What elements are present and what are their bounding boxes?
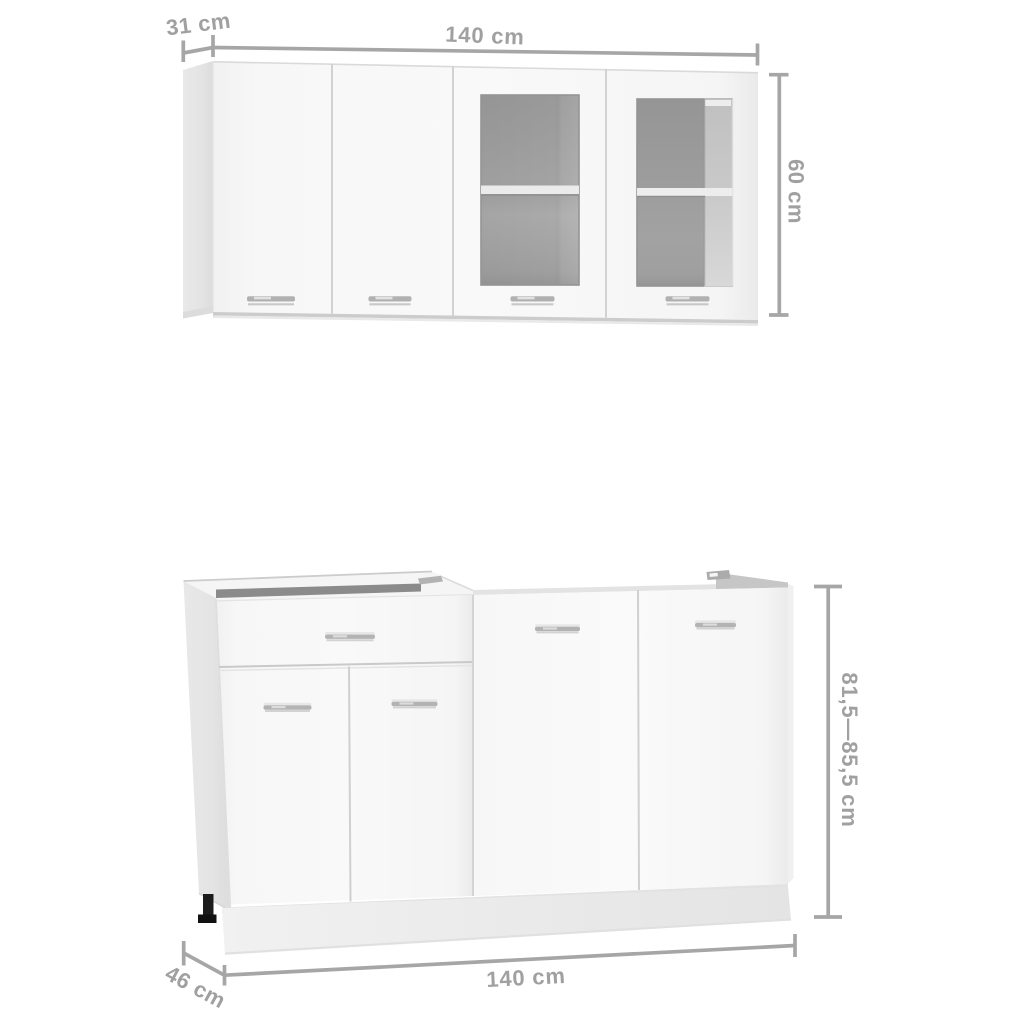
svg-text:140 cm: 140 cm bbox=[445, 21, 525, 49]
svg-text:81,5—85,5 cm: 81,5—85,5 cm bbox=[837, 672, 862, 827]
svg-text:60 cm: 60 cm bbox=[784, 159, 809, 224]
svg-text:140 cm: 140 cm bbox=[486, 963, 567, 992]
